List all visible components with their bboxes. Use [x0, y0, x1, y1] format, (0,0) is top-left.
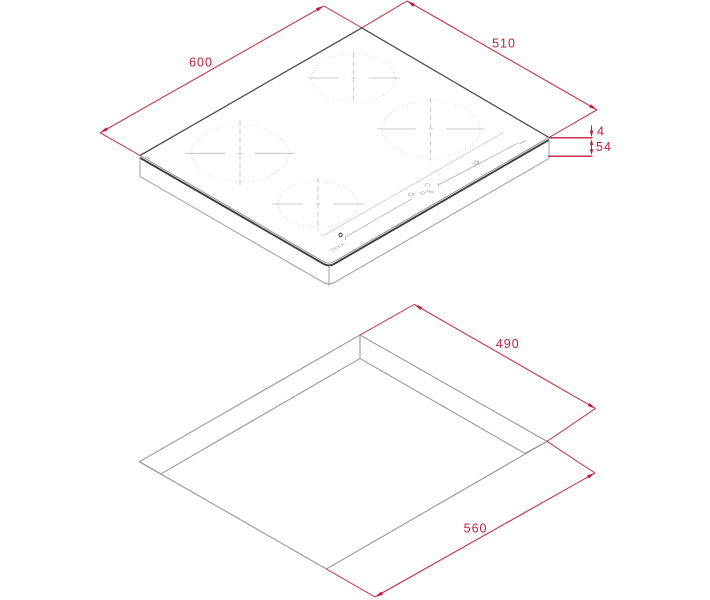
svg-text:490: 490 — [496, 337, 520, 351]
svg-text:4: 4 — [597, 125, 605, 139]
svg-text:510: 510 — [492, 37, 516, 51]
svg-text:560: 560 — [464, 521, 488, 535]
svg-text:600: 600 — [189, 56, 213, 70]
svg-text:54: 54 — [596, 140, 612, 154]
